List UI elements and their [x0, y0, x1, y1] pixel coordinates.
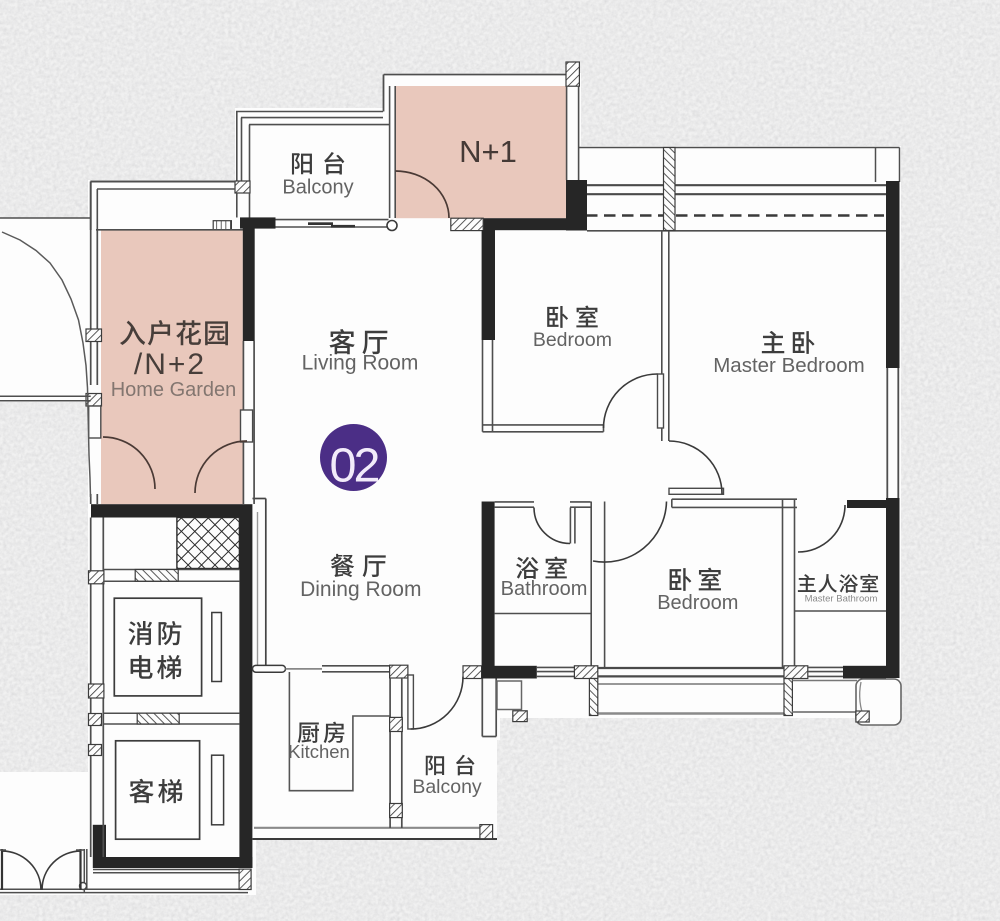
svg-text:Dining Room: Dining Room — [300, 578, 421, 601]
svg-text:Bedroom: Bedroom — [657, 592, 738, 614]
svg-text:Master Bedroom: Master Bedroom — [713, 354, 865, 377]
svg-text:Kitchen: Kitchen — [288, 741, 350, 762]
svg-text:/N+2: /N+2 — [134, 348, 206, 381]
svg-text:Home Garden: Home Garden — [111, 379, 237, 401]
svg-text:Master Bathroom: Master Bathroom — [805, 594, 878, 605]
svg-text:N+1: N+1 — [459, 134, 517, 169]
svg-text:Balcony: Balcony — [412, 776, 482, 798]
svg-text:Balcony: Balcony — [282, 177, 353, 199]
svg-text:Living Room: Living Room — [302, 352, 419, 375]
svg-text:Bathroom: Bathroom — [501, 578, 588, 600]
svg-text:02: 02 — [330, 439, 379, 493]
svg-text:Bedroom: Bedroom — [533, 329, 612, 351]
